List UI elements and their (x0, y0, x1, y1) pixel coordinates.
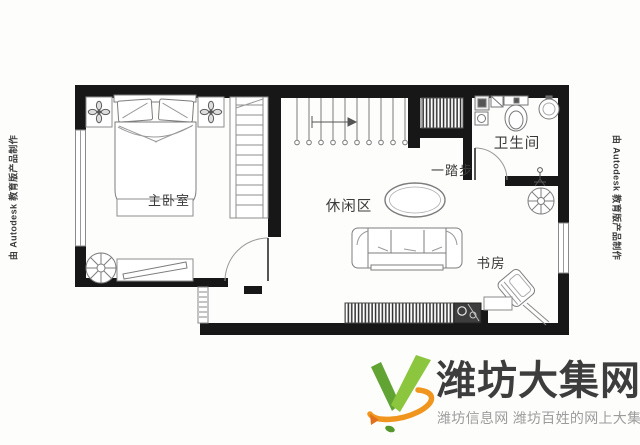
room-label-study: 书房 (477, 256, 506, 271)
kitchen-sink (454, 303, 481, 323)
step-column (198, 287, 208, 323)
stair-direction-arrow-icon (312, 116, 356, 128)
site-logo: 潍坊大集网 潍坊信息网 潍坊百姓的网上大集 (366, 354, 640, 445)
window-left-wall (76, 130, 86, 246)
site-name: 潍坊大集网 (436, 360, 640, 402)
coffee-table (385, 183, 445, 217)
screenshot-canvas: 由 Autodesk 教育版产品制作 由 Autodesk 教育版产品制作 (0, 0, 640, 445)
bedroom-door (225, 238, 268, 281)
plank (523, 303, 549, 325)
toilet (504, 96, 528, 131)
wardrobe-ladder (230, 97, 268, 218)
bathroom-door (475, 148, 507, 180)
counter (345, 303, 455, 323)
room-label-bathroom: 卫生间 (494, 135, 541, 152)
room-label-leisure-area: 休闲区 (326, 198, 373, 215)
washbasin (539, 96, 559, 119)
annotation-one-step: 一踏步 (431, 163, 473, 178)
sofa (352, 228, 462, 270)
step-platform (484, 297, 512, 310)
weifang-daji-logo-icon (366, 354, 438, 442)
room-label-master-bedroom: 主卧室 (148, 193, 190, 208)
stair-closet (421, 98, 463, 128)
double-bed (114, 95, 196, 206)
window-right-wall (559, 223, 569, 273)
plant-icon (528, 188, 554, 214)
shower-unit (475, 96, 503, 125)
site-tagline: 潍坊信息网 潍坊百姓的网上大集 (437, 408, 640, 428)
desk (117, 259, 193, 281)
plant-icon (86, 253, 116, 283)
